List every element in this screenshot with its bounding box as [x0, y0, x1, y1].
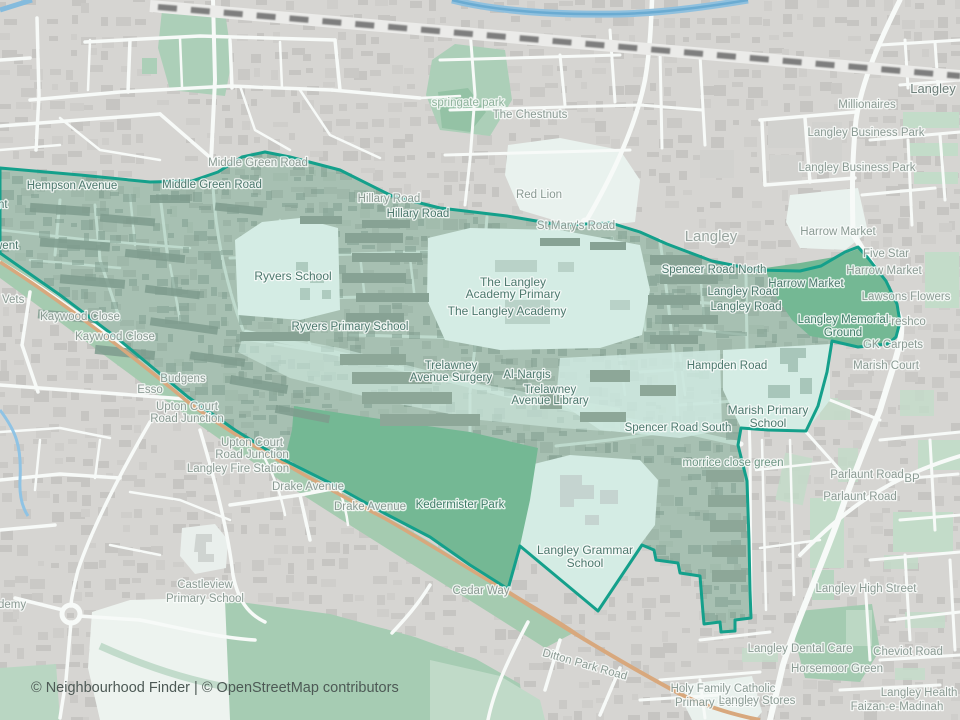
svg-text:Road Junction: Road Junction	[150, 413, 224, 425]
svg-text:School: School	[750, 416, 787, 430]
svg-text:Al-Nargis: Al-Nargis	[503, 369, 551, 381]
svg-text:Kaywood Close: Kaywood Close	[40, 311, 120, 323]
svg-text:GK Carpets: GK Carpets	[863, 339, 923, 351]
svg-text:Langley High Street: Langley High Street	[815, 583, 917, 595]
svg-text:Harrow Market: Harrow Market	[768, 278, 844, 290]
svg-text:Marish Primary: Marish Primary	[728, 403, 809, 417]
svg-text:Upton Court: Upton Court	[221, 437, 284, 449]
svg-text:Lawsons Flowers: Lawsons Flowers	[862, 291, 951, 303]
svg-text:Middle Green Road: Middle Green Road	[208, 157, 308, 169]
svg-text:Budgens: Budgens	[160, 373, 206, 385]
svg-text:Hillary Road: Hillary Road	[358, 193, 421, 205]
svg-text:Academy Primary: Academy Primary	[466, 287, 561, 301]
svg-text:Drake Avenue: Drake Avenue	[272, 481, 344, 493]
svg-text:BP: BP	[904, 473, 920, 485]
svg-text:Holy Family Catholic: Holy Family Catholic	[671, 683, 776, 695]
svg-text:Langley Health Ce: Langley Health Ce	[881, 687, 960, 699]
svg-text:Langley Stores: Langley Stores	[719, 695, 796, 707]
svg-text:Parlaunt Road: Parlaunt Road	[823, 491, 897, 503]
svg-text:Ryvers School: Ryvers School	[254, 269, 331, 283]
svg-text:Langley Grammar: Langley Grammar	[537, 543, 633, 557]
svg-text:springate park: springate park	[432, 97, 505, 109]
svg-text:Avenue Library: Avenue Library	[511, 395, 588, 407]
svg-text:Freshco: Freshco	[884, 316, 926, 328]
svg-text:Langley Fire Station: Langley Fire Station	[187, 463, 289, 475]
svg-text:The Chestnuts: The Chestnuts	[493, 109, 568, 121]
svg-text:Middle Green Road: Middle Green Road	[162, 179, 262, 191]
svg-text:Primary School: Primary School	[166, 593, 244, 605]
svg-text:Faizan-e-Madinah: Faizan-e-Madinah	[851, 701, 944, 713]
svg-text:Five Star: Five Star	[863, 248, 909, 260]
svg-text:went: went	[0, 240, 19, 252]
svg-text:Kaywood Close: Kaywood Close	[75, 331, 155, 343]
svg-text:Hillary Road: Hillary Road	[387, 208, 450, 220]
svg-text:Harrow Market: Harrow Market	[800, 226, 876, 238]
svg-text:© Neighbourhood Finder | © Ope: © Neighbourhood Finder | © OpenStreetMap…	[31, 680, 399, 696]
svg-text:Horsemoor Green: Horsemoor Green	[791, 663, 883, 675]
svg-text:Trelawney: Trelawney	[425, 360, 478, 372]
svg-text:The Langley Academy: The Langley Academy	[448, 304, 567, 318]
svg-text:Cedar Way: Cedar Way	[452, 585, 509, 597]
svg-text:Langley Business Park: Langley Business Park	[808, 127, 925, 139]
svg-text:Castleview: Castleview	[177, 579, 233, 591]
svg-text:St Mary's Road: St Mary's Road	[537, 220, 615, 232]
svg-text:Langley Road: Langley Road	[711, 301, 782, 313]
svg-text:Drake Avenue: Drake Avenue	[334, 501, 406, 513]
svg-text:Parlaunt Road: Parlaunt Road	[830, 469, 904, 481]
svg-text:Langley Business Park: Langley Business Park	[799, 162, 916, 174]
svg-text:morrice close green: morrice close green	[683, 457, 784, 469]
svg-text:Spencer Road South: Spencer Road South	[625, 422, 732, 434]
svg-text:Harrow Market: Harrow Market	[846, 265, 922, 277]
svg-text:Avenue Surgery: Avenue Surgery	[410, 372, 493, 384]
svg-text:Langley Dental Care: Langley Dental Care	[748, 643, 853, 655]
svg-text:Marish Court: Marish Court	[853, 360, 920, 372]
svg-text:School: School	[567, 556, 604, 570]
svg-text:Hampden Road: Hampden Road	[687, 360, 768, 372]
svg-text:Langley: Langley	[685, 228, 738, 245]
svg-text:Ryvers Primary School: Ryvers Primary School	[292, 321, 409, 333]
svg-text:Road Junction: Road Junction	[215, 449, 289, 461]
svg-text:Langley: Langley	[910, 81, 956, 96]
svg-text:Vets: Vets	[2, 294, 25, 306]
svg-text:Millionaires: Millionaires	[838, 99, 896, 111]
svg-text:Spencer Road North: Spencer Road North	[662, 264, 767, 276]
svg-text:Esso: Esso	[137, 384, 163, 396]
svg-text:Red Lion: Red Lion	[516, 189, 562, 201]
svg-text:Kedermister Park: Kedermister Park	[416, 499, 505, 511]
svg-text:Cheviot Road: Cheviot Road	[873, 646, 943, 658]
svg-text:demy: demy	[0, 599, 26, 611]
svg-text:Upton Court: Upton Court	[156, 401, 219, 413]
svg-text:Langley Memorial: Langley Memorial	[798, 314, 889, 326]
svg-text:Hempson Avenue: Hempson Avenue	[27, 180, 118, 192]
svg-text:nt: nt	[0, 199, 8, 211]
svg-text:Ground: Ground	[824, 327, 862, 339]
